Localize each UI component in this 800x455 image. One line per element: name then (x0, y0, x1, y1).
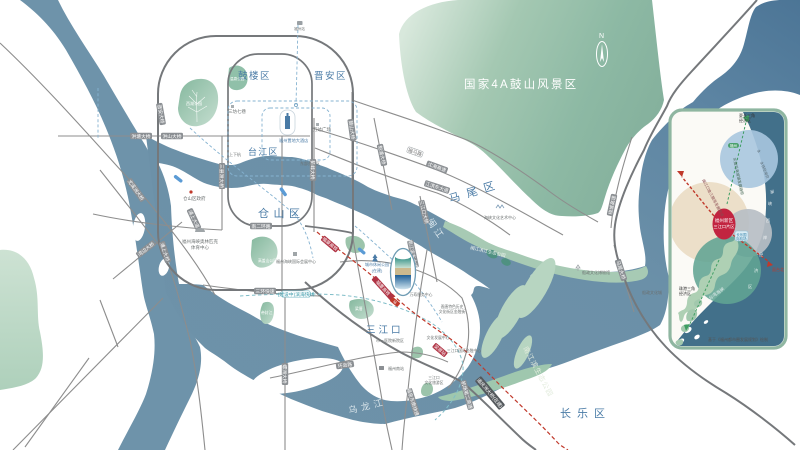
svg-text:帝封江: 帝封江 (261, 310, 273, 315)
svg-text:区: 区 (748, 284, 752, 289)
svg-text:西湖公园: 西湖公园 (186, 100, 202, 106)
svg-text:万达广场: 万达广场 (313, 126, 331, 133)
svg-text:海峡文化艺术中心: 海峡文化艺术中心 (484, 214, 516, 220)
svg-text:市一医院新院区: 市一医院新院区 (376, 337, 404, 343)
svg-text:(在建): (在建) (372, 267, 383, 273)
svg-text:三江口: 三江口 (428, 375, 440, 380)
svg-text:船政文化博物馆: 船政文化博物馆 (582, 269, 610, 275)
svg-text:上下杭: 上下杭 (229, 151, 241, 157)
svg-text:仓山区: 仓山区 (258, 206, 305, 220)
svg-text:福州海峡国际会展中心: 福州海峡国际会展中心 (276, 258, 316, 264)
svg-text:福州置地大酒店: 福州置地大酒店 (279, 137, 308, 144)
svg-text:际机场: 际机场 (736, 236, 747, 241)
svg-text:高盖山公园: 高盖山公园 (258, 258, 277, 263)
svg-text:福州: 福州 (730, 143, 738, 148)
svg-text:晋安区: 晋安区 (314, 70, 347, 82)
svg-text:螺洲大桥: 螺洲大桥 (281, 364, 288, 383)
svg-text:城市休闲公园: 城市休闲公园 (365, 261, 389, 267)
svg-text:三坊七巷: 三坊七巷 (228, 108, 246, 115)
svg-text:福州南站: 福州南站 (388, 365, 404, 371)
svg-text:洪塘大桥: 洪塘大桥 (131, 133, 150, 140)
svg-text:仓山区政府: 仓山区政府 (183, 195, 206, 202)
svg-text:福州海峡奥林匹克: 福州海峡奥林匹克 (182, 238, 218, 245)
svg-text:面台北: 面台北 (772, 266, 784, 272)
svg-text:经济区: 经济区 (679, 290, 691, 296)
svg-text:体育中心: 体育中心 (191, 244, 209, 251)
svg-text:文化发展中心: 文化发展中心 (427, 335, 450, 340)
svg-text:万寿服务中心: 万寿服务中心 (410, 292, 433, 297)
svg-text:三江口片区: 三江口片区 (714, 223, 735, 230)
svg-text:南二环路: 南二环路 (251, 223, 270, 230)
svg-text:国家4A鼓山风景区: 国家4A鼓山风景区 (464, 77, 578, 91)
svg-text:文化旅游区: 文化旅游区 (425, 380, 444, 385)
svg-text:船政文化城: 船政文化城 (642, 289, 662, 295)
svg-text:长乐区: 长乐区 (560, 407, 611, 420)
svg-text:文化街区金融街: 文化街区金融街 (439, 309, 466, 314)
svg-text:温泉公园: 温泉公园 (230, 76, 245, 81)
svg-text:N: N (599, 33, 604, 40)
svg-text:福州站: 福州站 (294, 26, 305, 31)
svg-text:福州新区: 福州新区 (715, 217, 734, 224)
svg-text:经济区: 经济区 (739, 117, 751, 123)
svg-text:三县洲大桥: 三县洲大桥 (218, 164, 225, 188)
svg-text:基于《福州都市圈发展规划》绘制: 基于《福州都市圈发展规划》绘制 (708, 336, 768, 342)
svg-text:晋唐特色历史: 晋唐特色历史 (441, 304, 464, 309)
svg-text:台江区: 台江区 (248, 146, 279, 157)
svg-text:东部办公区: 东部办公区 (300, 160, 320, 166)
svg-text:三江口: 三江口 (366, 325, 404, 336)
svg-text:(建设中)滨海快线: (建设中)滨海快线 (278, 291, 315, 298)
svg-text:洪山大桥: 洪山大桥 (162, 133, 181, 140)
svg-text:三环快速: 三环快速 (255, 288, 274, 295)
svg-text:梁厝: 梁厝 (355, 306, 363, 311)
svg-text:三江口国际金融中心: 三江口国际金融中心 (447, 348, 481, 353)
